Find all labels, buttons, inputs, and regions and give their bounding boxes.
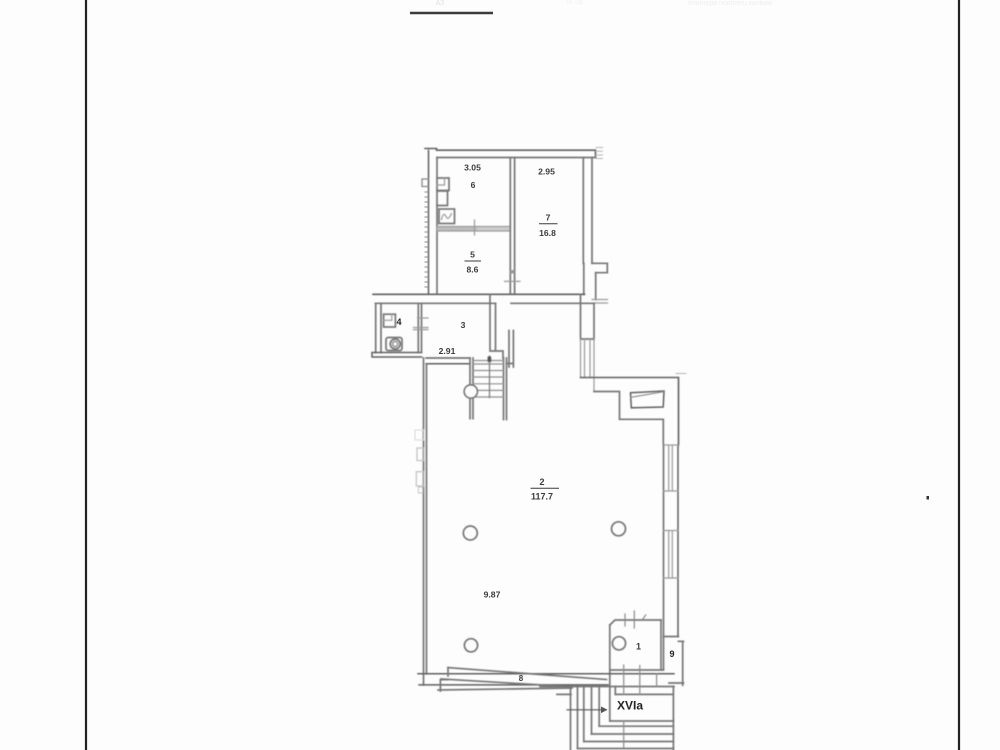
svg-text:3.05: 3.05 [464,163,481,173]
svg-text:nn ctp: nn ctp [567,0,584,6]
svg-text:117.7: 117.7 [531,492,553,502]
svg-text:6: 6 [471,180,476,190]
svg-text:7: 7 [546,213,551,223]
svg-text:8: 8 [519,674,524,683]
svg-text:2.91: 2.91 [439,346,456,356]
svg-text:5: 5 [470,250,475,260]
svg-text:2.95: 2.95 [538,167,555,177]
svg-text:9: 9 [669,649,674,659]
svg-text:9.87: 9.87 [484,590,501,600]
svg-text:8.6: 8.6 [467,265,479,275]
svg-text:1: 1 [636,642,641,652]
svg-text:16.8: 16.8 [539,228,556,238]
svg-text:АЗ: АЗ [436,0,445,7]
svg-text:плomepa noomeru канвим: плomepa noomeru канвим [688,0,772,7]
svg-text:XVIa: XVIa [617,699,643,713]
svg-text:3: 3 [461,320,466,330]
svg-text:2: 2 [539,477,544,487]
svg-text:4: 4 [396,317,401,327]
